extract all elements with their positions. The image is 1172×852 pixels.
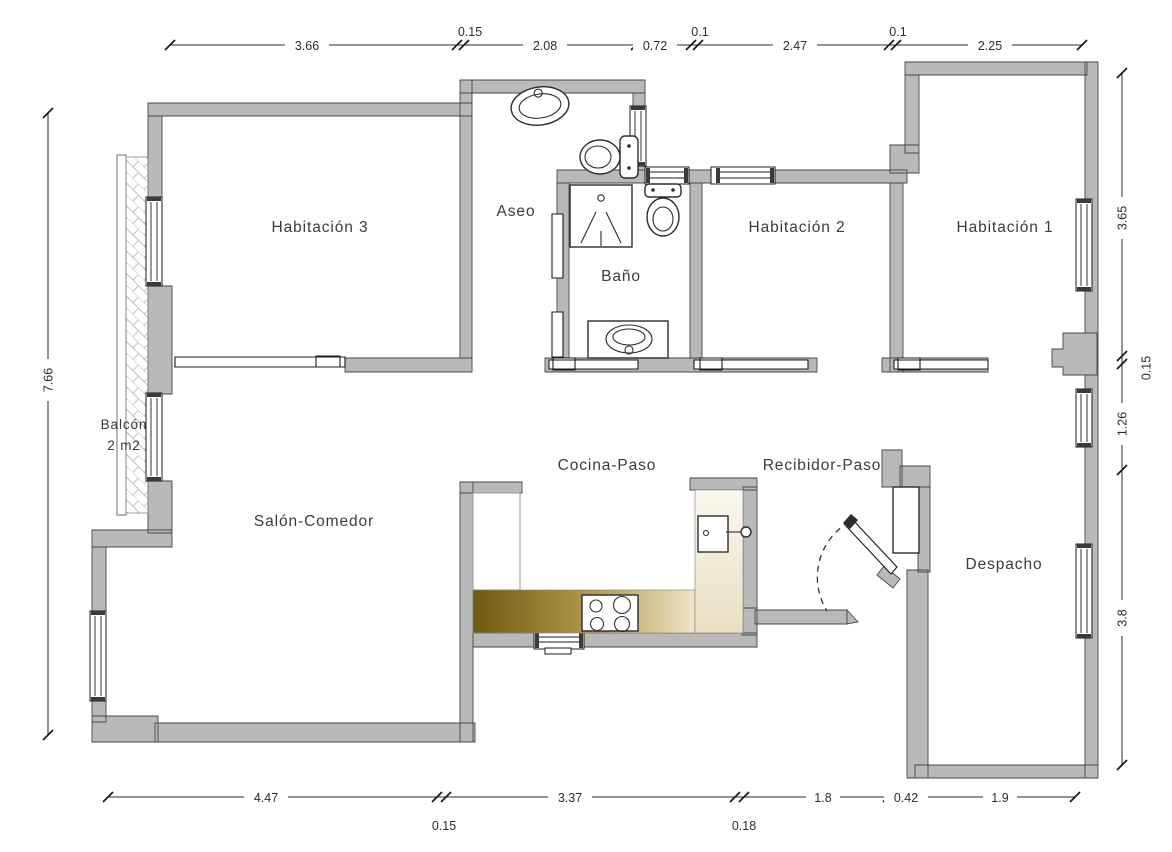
dim-value: 1.8 [814, 791, 831, 805]
kitchen [473, 490, 751, 633]
toilet-button [651, 188, 655, 192]
dimension-bottom: 4.47 0.15 3.37 0.18 1.8 0.42 1.9 [103, 790, 1080, 833]
toilet-bowl [647, 198, 679, 236]
balcony [117, 155, 148, 515]
dim-value: 3.65 [1116, 206, 1130, 230]
dim-value: 0.15 [1140, 356, 1154, 380]
wall-pillar [1052, 333, 1097, 375]
dim-value: 7.66 [42, 368, 56, 392]
dim-value: 0.1 [691, 25, 708, 39]
dimension-left: 7.66 [41, 108, 56, 740]
stove-icon [582, 595, 638, 632]
closet-niche [893, 487, 919, 553]
room-label-recibidor-paso: Recibidor-Paso [763, 457, 882, 474]
kitchen-cabinet [473, 493, 520, 590]
dim-value: 0.1 [889, 25, 906, 39]
toilet-bowl [580, 140, 620, 174]
dim-value: 2.25 [978, 39, 1002, 53]
kitchen-strip [695, 490, 743, 633]
dim-value: 0.18 [732, 819, 756, 833]
entrance-door-icon [846, 519, 897, 574]
toilet-button [627, 166, 631, 170]
sink-basin [698, 516, 728, 552]
toilet-icon [580, 136, 638, 178]
room-label-despacho: Despacho [966, 556, 1043, 573]
shower-icon [570, 185, 632, 247]
dim-value: 0.72 [643, 39, 667, 53]
room-label-cocina-paso: Cocina-Paso [558, 457, 657, 474]
toilet-tank [620, 136, 638, 178]
toilet-button [671, 188, 675, 192]
dimension-top: 3.66 0.15 2.08 0.72 0.1 2.47 0.1 2.25 [165, 25, 1087, 53]
entrance [817, 487, 919, 611]
dimension-right: 3.65 0.15 1.26 3.8 [1115, 68, 1154, 770]
room-label-balcon: Balcón [101, 417, 148, 432]
room-label-balcon-area: 2 m2 [107, 438, 141, 453]
room-label-bano: Baño [601, 268, 641, 285]
dim-value: 3.37 [558, 791, 582, 805]
dim-value: 3.66 [295, 39, 319, 53]
dim-value: 4.47 [254, 791, 278, 805]
balcony-floor-hatch [126, 157, 148, 513]
toilet-button [627, 144, 631, 148]
room-label-habitacion-3: Habitación 3 [272, 219, 369, 236]
dim-value: 1.26 [1116, 412, 1130, 436]
room-label-aseo: Aseo [497, 203, 536, 220]
dim-value: 0.15 [432, 819, 456, 833]
room-label-habitacion-1: Habitación 1 [957, 219, 1054, 236]
faucet-knob [741, 527, 751, 537]
door-swing-arc [817, 522, 849, 611]
dim-value: 0.15 [458, 25, 482, 39]
dim-value: 3.8 [1116, 609, 1130, 626]
floor-plan: Habitación 3 Aseo Baño Habitación 2 Habi… [0, 0, 1172, 852]
room-label-habitacion-2: Habitación 2 [749, 219, 846, 236]
room-label-salon-comedor: Salón-Comedor [254, 513, 374, 530]
toilet-tank [645, 184, 681, 197]
toilet-icon [645, 184, 681, 236]
wall-door-stub [847, 610, 858, 624]
dim-value: 0.42 [894, 791, 918, 805]
dim-value: 1.9 [991, 791, 1008, 805]
dim-value: 2.47 [783, 39, 807, 53]
aseo-fixtures [509, 83, 638, 178]
washbasin-icon [588, 321, 668, 358]
balcony-edge [117, 155, 126, 515]
dim-value: 2.08 [533, 39, 557, 53]
kitchen-window-handle [545, 648, 571, 654]
